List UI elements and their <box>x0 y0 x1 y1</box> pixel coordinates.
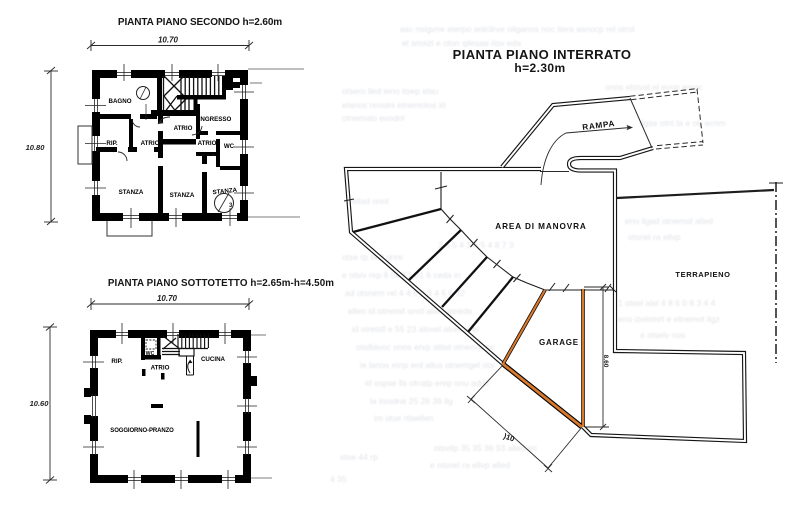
svg-text:10.60: 10.60 <box>30 399 50 408</box>
svg-text:WC: WC <box>224 143 235 150</box>
svg-text:INGRESSO: INGRESSO <box>199 116 232 123</box>
svg-text:ATRIO: ATRIO <box>198 140 217 147</box>
svg-text:RIP.: RIP. <box>111 358 123 365</box>
svg-text:ATRIO: ATRIO <box>141 140 160 147</box>
svg-text:SOGGIORNO-PRANZO: SOGGIORNO-PRANZO <box>110 428 174 434</box>
svg-text:h=2.30m: h=2.30m <box>514 61 565 75</box>
svg-text:ATRIO: ATRIO <box>151 365 170 372</box>
svg-text:CUCINA: CUCINA <box>201 356 226 363</box>
svg-text:WC: WC <box>146 351 155 357</box>
svg-text:STANZA: STANZA <box>212 187 238 197</box>
svg-text:10.70: 10.70 <box>158 36 179 45</box>
svg-text:AREA DI MANOVRA: AREA DI MANOVRA <box>495 222 586 231</box>
svg-text:BAGNO: BAGNO <box>108 98 131 105</box>
svg-text:GARAGE: GARAGE <box>539 338 579 347</box>
svg-text:RAMPA: RAMPA <box>582 119 616 132</box>
svg-text:10.70: 10.70 <box>157 294 178 303</box>
svg-text:10.80: 10.80 <box>26 143 46 152</box>
svg-text:RIP.: RIP. <box>106 140 118 147</box>
svg-text:STANZA: STANZA <box>119 189 144 196</box>
svg-text:PIANTA PIANO SOTTOTETTO h=2.65: PIANTA PIANO SOTTOTETTO h=2.65m-h=4.50m <box>108 278 334 289</box>
svg-text:TERRAPIENO: TERRAPIENO <box>675 270 730 279</box>
svg-text:)10: )10 <box>502 431 515 443</box>
svg-text:PIANTA PIANO SECONDO h=2.60m: PIANTA PIANO SECONDO h=2.60m <box>118 17 282 28</box>
svg-text:8.60: 8.60 <box>602 355 609 368</box>
svg-text:PIANTA PIANO INTERRATO: PIANTA PIANO INTERRATO <box>453 47 632 62</box>
svg-text:STANZA: STANZA <box>170 192 195 199</box>
svg-text:ATRIO: ATRIO <box>174 125 193 132</box>
